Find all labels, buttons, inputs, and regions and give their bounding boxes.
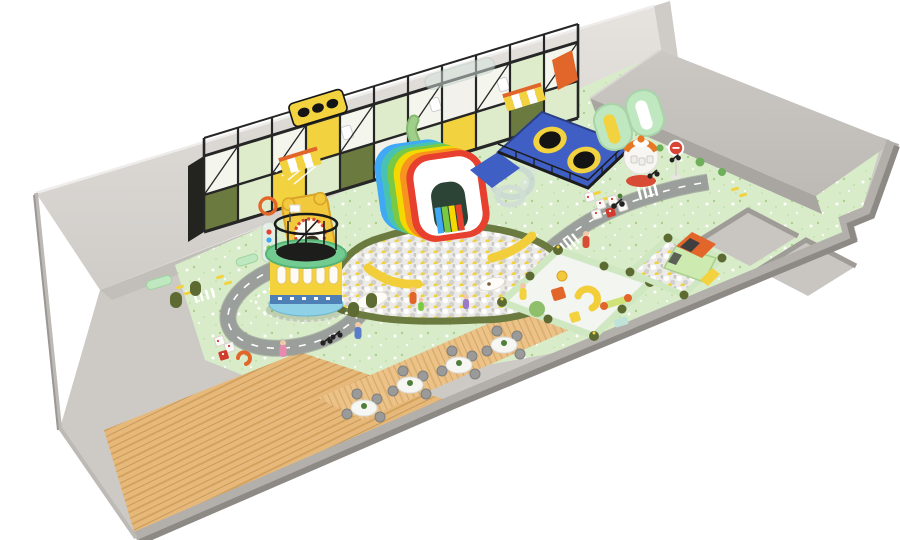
capsule-kiosk [624,135,658,187]
scene-canvas [0,0,900,540]
playground-render [0,0,900,540]
